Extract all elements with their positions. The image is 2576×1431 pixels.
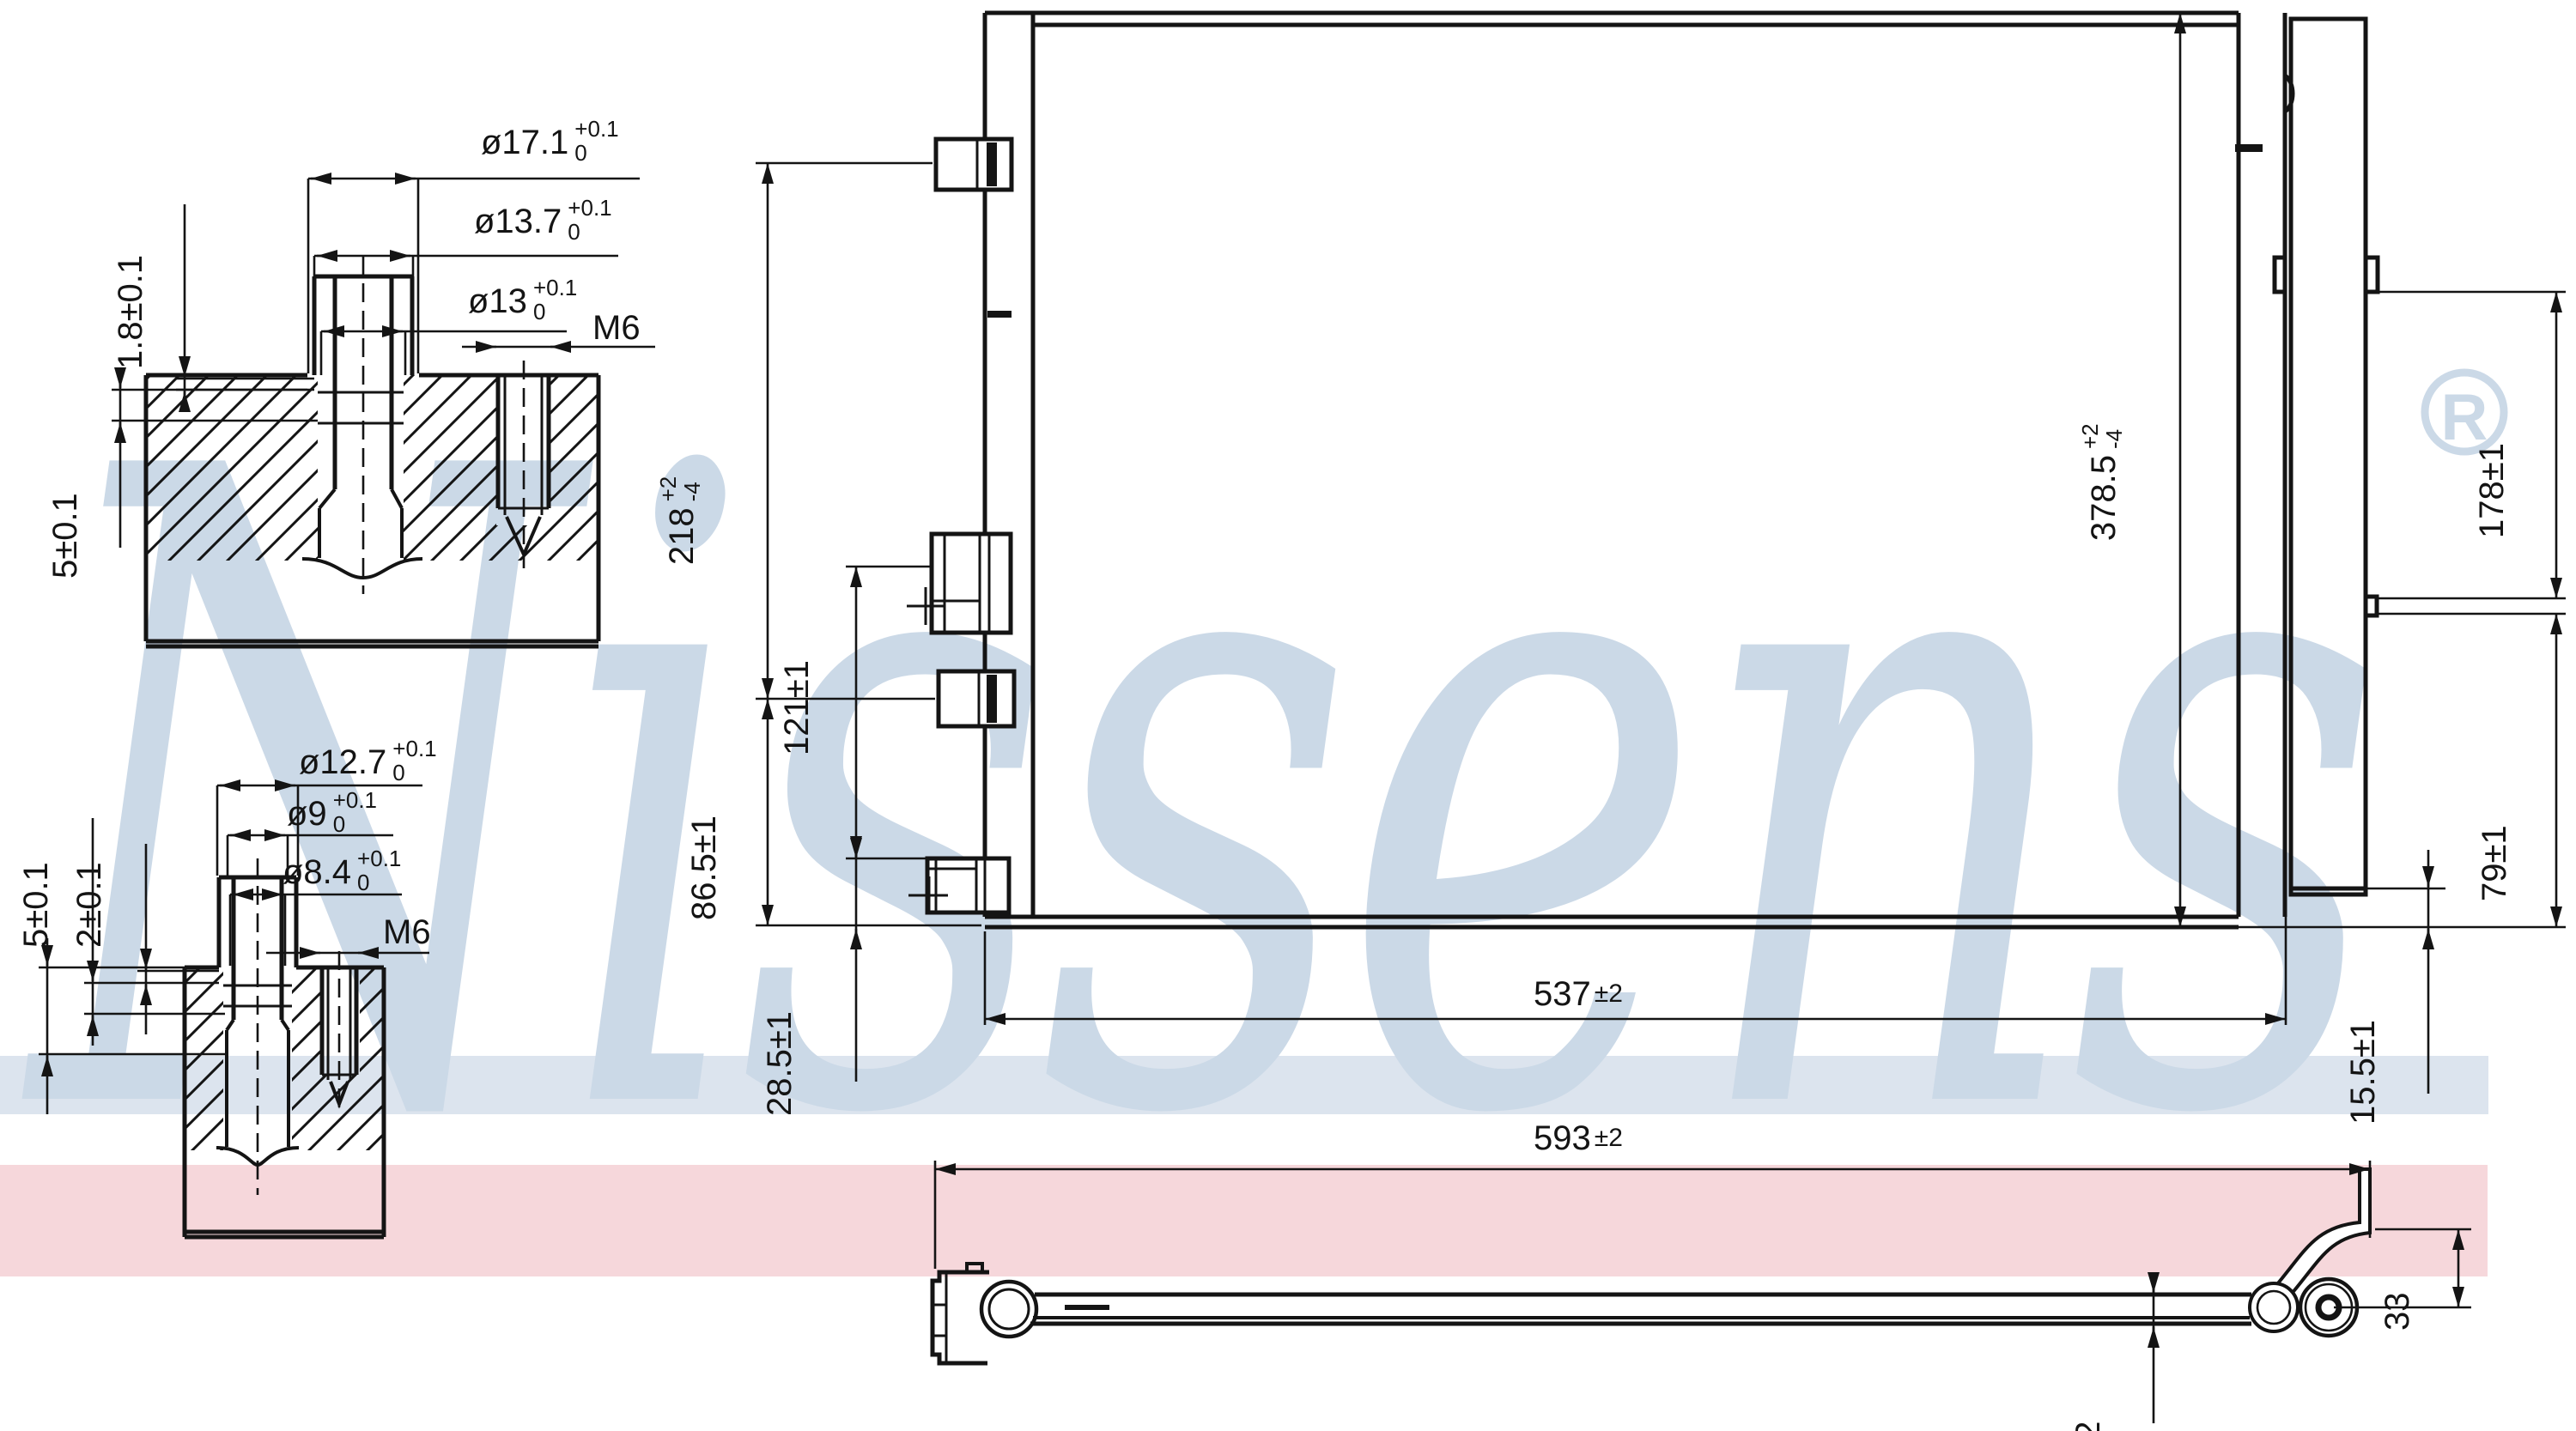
dim-tube-12: 12 [2071,1422,2105,1431]
dim-thread-m6-top: M6 [592,311,641,345]
dim-drier-79: 79±1 [2477,825,2512,901]
dim-port-spacing-121: 121±1 [780,660,814,755]
dim-dia-12-7: ø12.7 +0.10 [299,738,437,786]
dim-port-height-86-5: 86.5±1 [687,816,721,920]
dim-offset-15-5: 15.5±1 [2346,1020,2380,1125]
dim-height-218: 218 +2-4 [658,476,706,565]
dim-flange-1-8: 1.8±0.1 [113,255,148,369]
nissens-watermark: Nissens R [15,286,2504,1306]
dim-depth-5-bottom: 5±0.1 [19,862,53,948]
dim-port-bottom-28-5: 28.5±1 [762,1011,797,1116]
technical-drawing-page: Nissens R [0,0,2576,1431]
dim-drier-178: 178±1 [2475,443,2509,538]
dim-dia-13: ø13 +0.10 [468,277,577,325]
fitting-lower [939,671,1014,726]
dim-dia-13-7: ø13.7 +0.10 [474,197,612,246]
dim-height-378-5: 378.5 +2-4 [2080,423,2128,541]
fitting-top [936,139,1012,190]
dim-dia-17-1: ø17.1 +0.10 [481,118,619,167]
dim-bracket-33: 33 [2380,1293,2415,1331]
dim-dia-9: ø9 +0.10 [287,790,377,838]
dim-width-593: 593 ±2 [1534,1121,1623,1155]
dim-depth-5-top: 5±0.1 [48,493,82,579]
dim-dia-8-4: ø8.4 +0.10 [283,848,401,896]
dim-width-537: 537 ±2 [1534,977,1623,1011]
technical-drawing-linework: Nissens R [0,0,2576,1431]
dim-depth-14: 14 +0.10 [0,1055,3,1143]
dim-depth-2: 2±0.1 [72,862,106,948]
dim-thread-m6-bottom: M6 [383,915,431,949]
